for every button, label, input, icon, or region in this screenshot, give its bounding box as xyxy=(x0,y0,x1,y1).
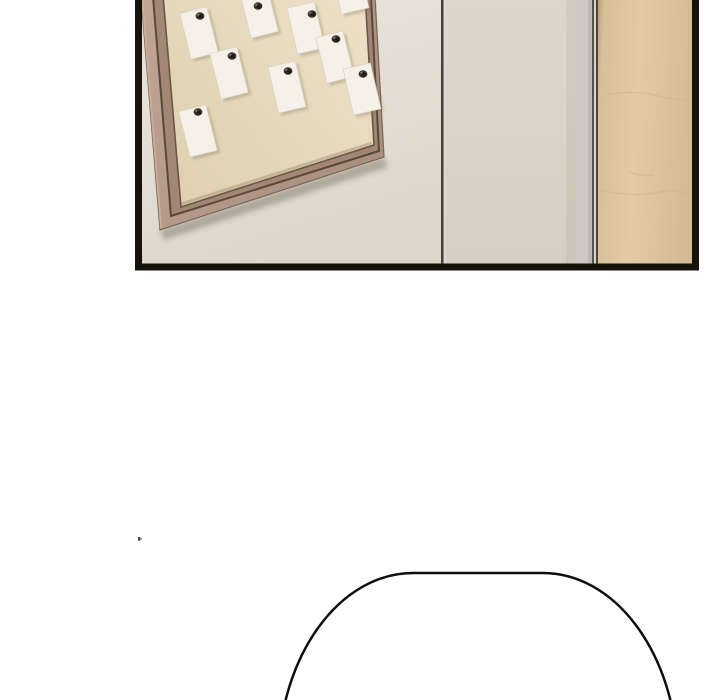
push-pin xyxy=(196,12,205,20)
push-pin xyxy=(254,2,263,10)
push-pin xyxy=(308,10,317,18)
wall-mid xyxy=(443,0,576,268)
speck-light xyxy=(140,538,141,540)
ink-speck xyxy=(138,537,142,541)
pin-highlight xyxy=(195,110,197,112)
pin-highlight xyxy=(309,12,311,14)
push-pin xyxy=(359,70,368,78)
comic-panel xyxy=(138,0,694,268)
pin-highlight xyxy=(360,72,362,74)
pin-highlight xyxy=(333,37,335,39)
comic-artwork xyxy=(0,0,720,700)
wall-corner-highlight xyxy=(444,0,446,268)
door-jamb-line-1 xyxy=(594,0,596,268)
push-pin xyxy=(228,52,237,60)
pin-highlight xyxy=(197,14,199,16)
pin-highlight xyxy=(229,54,231,56)
door-jamb-shade xyxy=(588,0,592,268)
wall-corner-line xyxy=(441,0,444,268)
push-pin xyxy=(284,67,293,75)
door-jamb-line-2 xyxy=(596,0,598,268)
comic-page xyxy=(0,0,720,700)
push-pin xyxy=(332,35,341,43)
wall-shade xyxy=(566,0,576,268)
speech-bubble-outline xyxy=(278,573,678,700)
push-pin xyxy=(194,108,203,116)
pin-highlight xyxy=(255,4,257,6)
speech-bubble xyxy=(278,573,678,700)
speck-dark xyxy=(138,537,140,541)
pin-highlight xyxy=(285,69,287,71)
door-jamb-line-0 xyxy=(592,0,594,268)
wooden-door xyxy=(598,0,694,268)
